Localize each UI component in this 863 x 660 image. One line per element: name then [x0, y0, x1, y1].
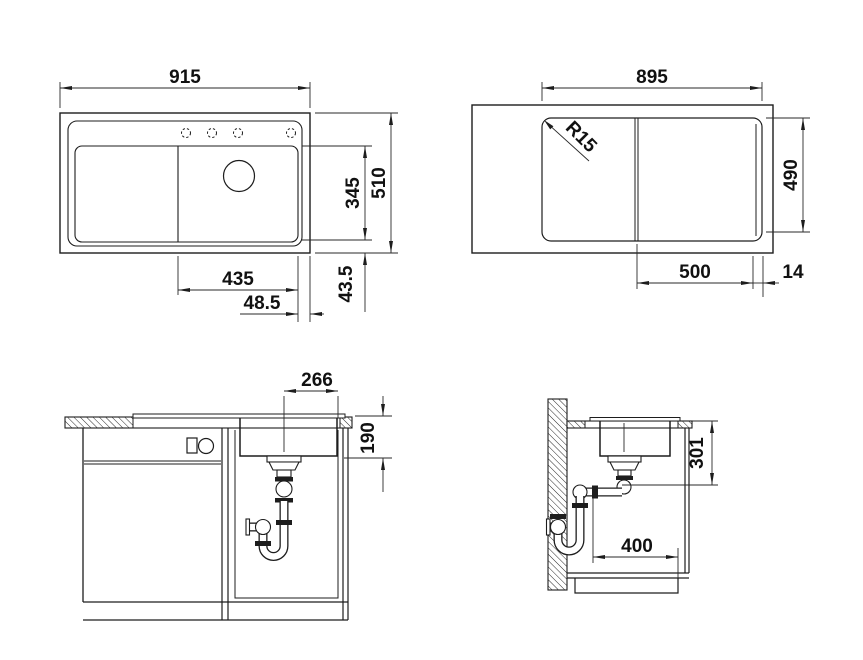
strainer-flange: [608, 456, 641, 462]
background: [0, 0, 863, 660]
strainer-flange: [267, 456, 301, 462]
strainer-body: [610, 462, 639, 470]
dim-label-895: 895: [636, 67, 668, 88]
countertop-section: [567, 421, 692, 428]
appliance-control-rect: [187, 438, 197, 453]
dim-label-301: 301: [687, 437, 708, 469]
pipe-coupling: [592, 486, 598, 499]
dim-label-48-5: 48.5: [244, 293, 281, 314]
strainer-neck: [277, 470, 291, 477]
pipe-coupling: [276, 520, 292, 525]
countertop-hatch-right: [678, 421, 692, 428]
outlet-cap: [547, 519, 551, 535]
sink-technical-drawing: 915 510 345 43.5 435: [0, 0, 863, 660]
countertop-hatch-right: [340, 417, 352, 428]
dim-label-435: 435: [222, 269, 254, 290]
dim-label-14: 14: [782, 262, 804, 283]
dim-label-345: 345: [343, 177, 364, 209]
countertop-outline: [472, 105, 773, 253]
dim-label-43-5: 43.5: [336, 265, 357, 302]
dim-label-510: 510: [369, 167, 390, 199]
countertop-hatch-left: [567, 421, 585, 428]
sink-outer-outline: [60, 113, 310, 253]
dim-label-266: 266: [301, 370, 333, 391]
ball-joint: [551, 520, 566, 535]
dim-label-490: 490: [781, 159, 802, 191]
dim-label-500: 500: [679, 262, 711, 283]
drawing-canvas: 915 510 345 43.5 435: [0, 0, 863, 660]
outlet-cap: [246, 519, 250, 535]
pipe-coupling: [616, 476, 633, 480]
wall-section: [548, 399, 567, 590]
ball-joint: [256, 520, 271, 535]
appliance-control-knob: [199, 439, 214, 454]
pipe-coupling: [572, 503, 588, 508]
sink-rim-section: [590, 418, 680, 422]
sink-rim-section: [133, 414, 345, 418]
pipe-coupling: [255, 541, 271, 546]
strainer-body: [269, 462, 299, 470]
strainer-neck: [618, 470, 631, 476]
pipe-coupling: [550, 514, 566, 519]
dim-label-190: 190: [358, 422, 379, 454]
countertop-hatch-left: [65, 417, 133, 428]
dim-label-915: 915: [169, 67, 201, 88]
dim-label-400: 400: [621, 536, 653, 557]
ball-joint: [276, 481, 292, 497]
